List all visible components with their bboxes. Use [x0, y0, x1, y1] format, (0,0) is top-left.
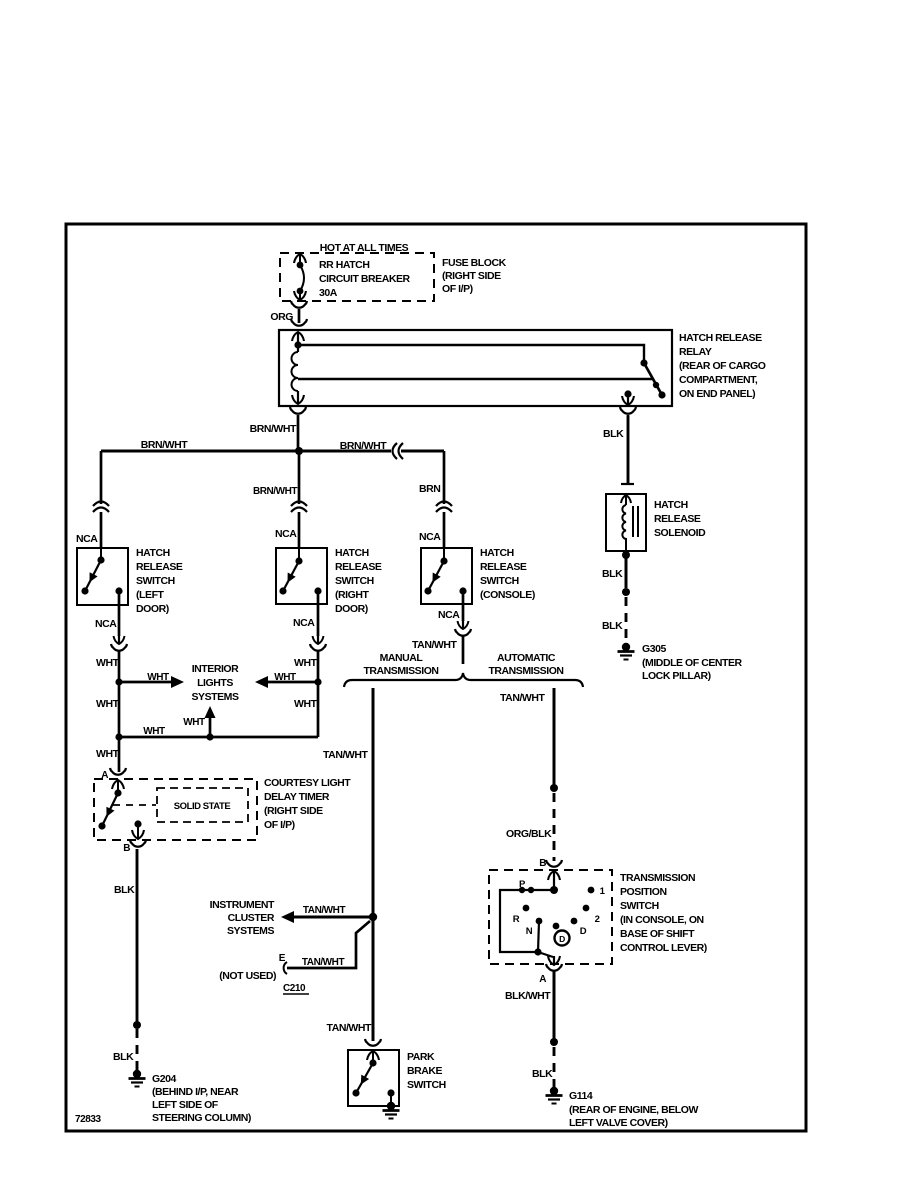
svg-text:WHT: WHT — [294, 698, 318, 710]
svg-text:(NOT USED): (NOT USED) — [219, 970, 276, 982]
svg-text:C210: C210 — [283, 983, 306, 994]
svg-text:NCA: NCA — [76, 533, 98, 545]
svg-text:RELEASE: RELEASE — [335, 561, 382, 573]
svg-text:(RIGHT SIDE: (RIGHT SIDE — [264, 805, 323, 817]
svg-text:BRAKE: BRAKE — [407, 1065, 443, 1077]
svg-text:NCA: NCA — [438, 609, 460, 621]
svg-text:R: R — [513, 914, 520, 925]
svg-text:SYSTEMS: SYSTEMS — [227, 925, 274, 937]
svg-text:SWITCH: SWITCH — [407, 1079, 446, 1091]
svg-text:WHT: WHT — [96, 698, 120, 710]
svg-text:A: A — [539, 974, 546, 985]
svg-text:SWITCH: SWITCH — [335, 575, 374, 587]
svg-text:TRANSMISSION: TRANSMISSION — [488, 665, 563, 677]
svg-text:ORG: ORG — [270, 311, 293, 323]
svg-text:TAN/WHT: TAN/WHT — [500, 692, 546, 704]
svg-text:RELEASE: RELEASE — [480, 561, 527, 573]
svg-text:SOLID STATE: SOLID STATE — [174, 801, 231, 812]
svg-text:BLK: BLK — [532, 1068, 553, 1080]
svg-text:PARK: PARK — [407, 1051, 435, 1063]
svg-text:OF I/P): OF I/P) — [442, 283, 473, 295]
svg-text:SWITCH: SWITCH — [620, 900, 659, 912]
svg-text:CLUSTER: CLUSTER — [228, 912, 275, 924]
svg-text:NCA: NCA — [419, 531, 441, 543]
svg-text:(CONSOLE): (CONSOLE) — [480, 589, 535, 601]
svg-text:NCA: NCA — [293, 617, 315, 629]
svg-text:G305: G305 — [642, 643, 666, 655]
svg-text:DELAY TIMER: DELAY TIMER — [264, 791, 330, 803]
svg-text:BLK: BLK — [114, 884, 135, 896]
svg-text:NCA: NCA — [275, 528, 297, 540]
svg-text:ON END PANEL): ON END PANEL) — [679, 388, 755, 400]
svg-text:BRN: BRN — [419, 483, 440, 495]
svg-text:MANUAL: MANUAL — [380, 652, 424, 664]
svg-text:WHT: WHT — [143, 726, 165, 737]
svg-text:SWITCH: SWITCH — [480, 575, 519, 587]
svg-text:LOCK PILLAR): LOCK PILLAR) — [642, 670, 711, 682]
svg-text:(MIDDLE OF CENTER: (MIDDLE OF CENTER — [642, 657, 743, 669]
svg-text:COMPARTMENT,: COMPARTMENT, — [679, 374, 758, 386]
svg-text:D: D — [580, 926, 587, 937]
svg-text:(BEHIND I/P, NEAR: (BEHIND I/P, NEAR — [152, 1086, 239, 1098]
svg-text:(IN CONSOLE, ON: (IN CONSOLE, ON — [620, 914, 704, 926]
svg-text:N: N — [526, 926, 533, 937]
svg-text:TAN/WHT: TAN/WHT — [302, 957, 345, 968]
svg-text:HATCH: HATCH — [136, 547, 170, 559]
svg-text:CIRCUIT BREAKER: CIRCUIT BREAKER — [319, 273, 411, 285]
svg-text:SYSTEMS: SYSTEMS — [191, 691, 238, 703]
svg-text:SOLENOID: SOLENOID — [654, 527, 706, 539]
svg-text:G114: G114 — [569, 1090, 593, 1102]
svg-text:AUTOMATIC: AUTOMATIC — [497, 652, 556, 664]
svg-text:RELEASE: RELEASE — [654, 513, 701, 525]
svg-text:(LEFT: (LEFT — [136, 589, 165, 601]
svg-text:BRN/WHT: BRN/WHT — [141, 439, 188, 451]
svg-text:SWITCH: SWITCH — [136, 575, 175, 587]
svg-text:DOOR): DOOR) — [335, 603, 368, 615]
svg-text:COURTESY LIGHT: COURTESY LIGHT — [264, 777, 351, 789]
svg-text:LEFT SIDE OF: LEFT SIDE OF — [152, 1099, 219, 1111]
svg-text:WHT: WHT — [96, 748, 120, 760]
svg-text:WHT: WHT — [147, 672, 169, 683]
svg-text:OF I/P): OF I/P) — [264, 819, 295, 831]
svg-text:BRN/WHT: BRN/WHT — [340, 440, 387, 452]
svg-text:E: E — [279, 953, 286, 964]
svg-text:FUSE BLOCK: FUSE BLOCK — [442, 257, 507, 269]
svg-text:WHT: WHT — [274, 672, 296, 683]
svg-text:2: 2 — [595, 914, 600, 925]
svg-text:BLK: BLK — [602, 568, 623, 580]
svg-text:B: B — [539, 858, 546, 869]
svg-text:BLK: BLK — [603, 428, 624, 440]
svg-text:BRN/WHT: BRN/WHT — [250, 423, 297, 435]
svg-text:BLK: BLK — [602, 620, 623, 632]
svg-text:TAN/WHT: TAN/WHT — [412, 639, 458, 651]
svg-text:TAN/WHT: TAN/WHT — [303, 905, 346, 916]
svg-text:HATCH: HATCH — [335, 547, 369, 559]
svg-text:HATCH: HATCH — [480, 547, 514, 559]
svg-text:TAN/WHT: TAN/WHT — [327, 1022, 373, 1034]
svg-text:POSITION: POSITION — [620, 886, 667, 898]
svg-text:WHT: WHT — [294, 657, 318, 669]
svg-text:BLK: BLK — [113, 1051, 134, 1063]
svg-text:RELEASE: RELEASE — [136, 561, 183, 573]
svg-text:WHT: WHT — [183, 717, 205, 728]
svg-text:NCA: NCA — [95, 618, 117, 630]
svg-text:HATCH: HATCH — [654, 499, 688, 511]
svg-text:D: D — [559, 934, 565, 944]
svg-text:WHT: WHT — [96, 657, 120, 669]
svg-text:RELAY: RELAY — [679, 346, 712, 358]
svg-text:BASE OF SHIFT: BASE OF SHIFT — [620, 928, 695, 940]
svg-text:(RIGHT: (RIGHT — [335, 589, 369, 601]
svg-text:TAN/WHT: TAN/WHT — [323, 749, 369, 761]
svg-text:G204: G204 — [152, 1073, 176, 1085]
svg-text:BRN/WHT: BRN/WHT — [253, 486, 297, 497]
svg-text:72833: 72833 — [75, 1114, 101, 1125]
svg-text:TRANSMISSION: TRANSMISSION — [363, 665, 438, 677]
svg-text:30A: 30A — [319, 287, 338, 299]
svg-text:(REAR OF ENGINE, BELOW: (REAR OF ENGINE, BELOW — [569, 1104, 698, 1116]
svg-text:HATCH RELEASE: HATCH RELEASE — [679, 332, 762, 344]
svg-text:CONTROL LEVER): CONTROL LEVER) — [620, 942, 707, 954]
svg-text:BLK/WHT: BLK/WHT — [505, 990, 551, 1002]
svg-text:B: B — [123, 843, 130, 854]
svg-text:STEERING COLUMN): STEERING COLUMN) — [152, 1112, 251, 1124]
svg-text:ORG/BLK: ORG/BLK — [506, 828, 552, 840]
svg-text:INSTRUMENT: INSTRUMENT — [210, 899, 275, 911]
svg-text:RR HATCH: RR HATCH — [319, 259, 369, 271]
svg-text:DOOR): DOOR) — [136, 603, 169, 615]
svg-text:LEFT VALVE COVER): LEFT VALVE COVER) — [569, 1117, 668, 1129]
svg-text:(REAR OF CARGO: (REAR OF CARGO — [679, 360, 766, 372]
svg-text:(RIGHT SIDE: (RIGHT SIDE — [442, 270, 501, 282]
svg-text:LIGHTS: LIGHTS — [197, 677, 233, 689]
svg-text:INTERIOR: INTERIOR — [192, 663, 239, 675]
svg-text:TRANSMISSION: TRANSMISSION — [620, 872, 695, 884]
